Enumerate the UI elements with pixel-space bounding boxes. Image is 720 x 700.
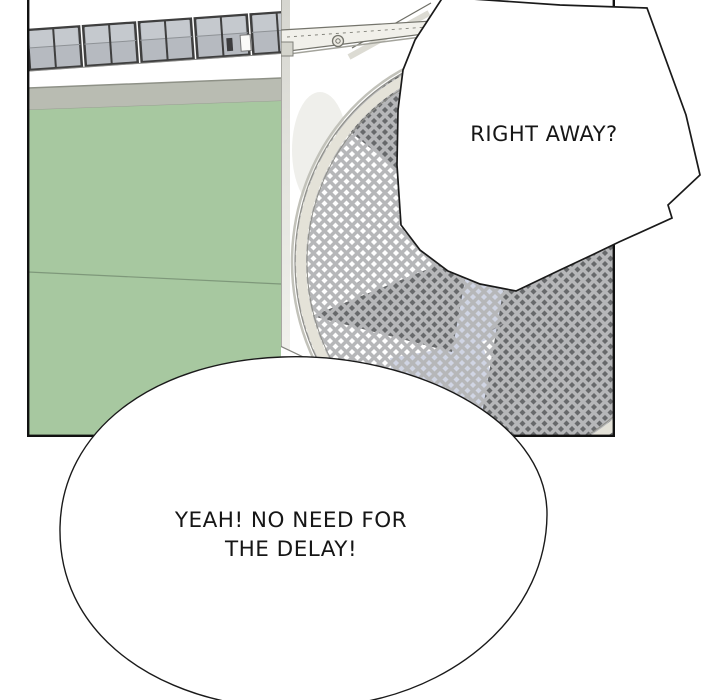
speech-bubble-shout: RIGHT AWAY? [397, 0, 700, 291]
reply-text-line2: THE DELAY! [224, 537, 357, 562]
bolt-icon [333, 36, 344, 47]
window [195, 15, 252, 59]
window [83, 23, 138, 67]
window [27, 26, 82, 70]
speech-bubble-reply: YEAH! NO NEED FOR THE DELAY! [60, 357, 547, 700]
comic-page: YEAH! NO NEED FOR THE DELAY! RIGHT AWAY? [0, 0, 720, 700]
shout-text: RIGHT AWAY? [470, 122, 617, 146]
door-dark [226, 38, 233, 51]
reply-text-line1: YEAH! NO NEED FOR [174, 508, 407, 533]
comic-panel-art: YEAH! NO NEED FOR THE DELAY! RIGHT AWAY? [0, 0, 720, 700]
door-white [240, 35, 251, 52]
window [139, 19, 194, 63]
